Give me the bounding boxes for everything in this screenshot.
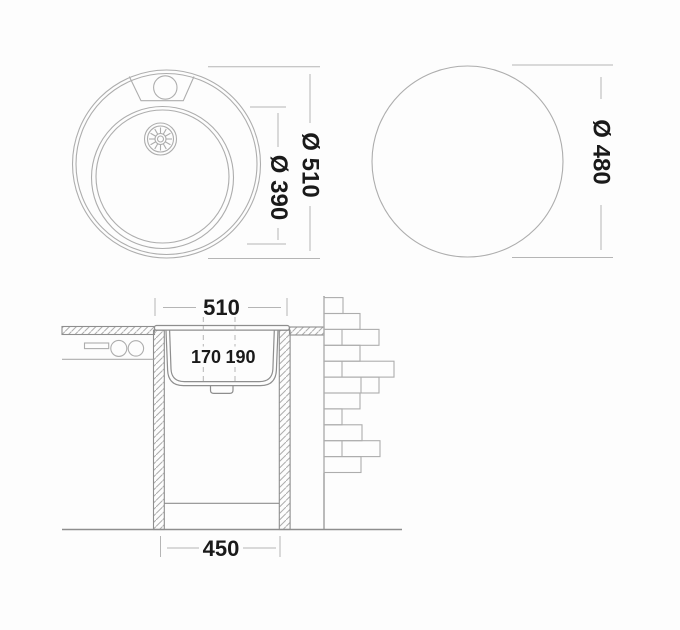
cutout-circle <box>372 66 563 257</box>
sink-top-view <box>73 70 261 258</box>
bowl-section-inner <box>170 330 275 381</box>
bowl-diameter-dimension: Ø 390 <box>247 107 292 244</box>
bowl-diameter-label: Ø 390 <box>265 155 292 220</box>
drain-spokes <box>149 128 172 151</box>
technical-drawing-page: Ø 510 Ø 390 Ø 480 510 <box>0 0 680 630</box>
depth-right-label: 190 <box>225 347 255 367</box>
counter-apron-left <box>62 340 154 359</box>
bowl-section-outer <box>166 330 278 385</box>
drain-detail <box>145 123 177 155</box>
section-view: 510 170 190 <box>62 295 402 561</box>
apron-slot <box>85 343 109 349</box>
bowl-edge <box>92 107 234 249</box>
overall-width-dimension: 510 <box>155 295 287 320</box>
base-width-label: 450 <box>203 536 240 561</box>
base-width-dimension: 450 <box>161 536 281 561</box>
depth-left-label: 170 <box>191 347 221 367</box>
cutout-view: Ø 480 <box>372 65 615 258</box>
sink-rim-section <box>155 326 290 331</box>
countertop-left <box>62 327 155 335</box>
outer-diameter-label: Ø 510 <box>297 132 324 197</box>
countertop-right <box>290 327 325 335</box>
apron-hole-left <box>111 340 127 356</box>
cutout-diameter-label: Ø 480 <box>588 119 615 184</box>
faucet-deck <box>129 77 194 101</box>
apron-hole-right <box>128 341 143 356</box>
sink-drawing-canvas: Ø 510 Ø 390 Ø 480 510 <box>0 0 680 630</box>
brick-wall <box>324 298 394 473</box>
cabinet-wall-right <box>279 330 290 529</box>
cabinet-wall-left <box>154 330 165 529</box>
overall-width-label: 510 <box>203 295 240 320</box>
faucet-hole <box>154 76 177 99</box>
bowl-inner-edge <box>96 110 229 243</box>
drain-section <box>211 386 234 394</box>
